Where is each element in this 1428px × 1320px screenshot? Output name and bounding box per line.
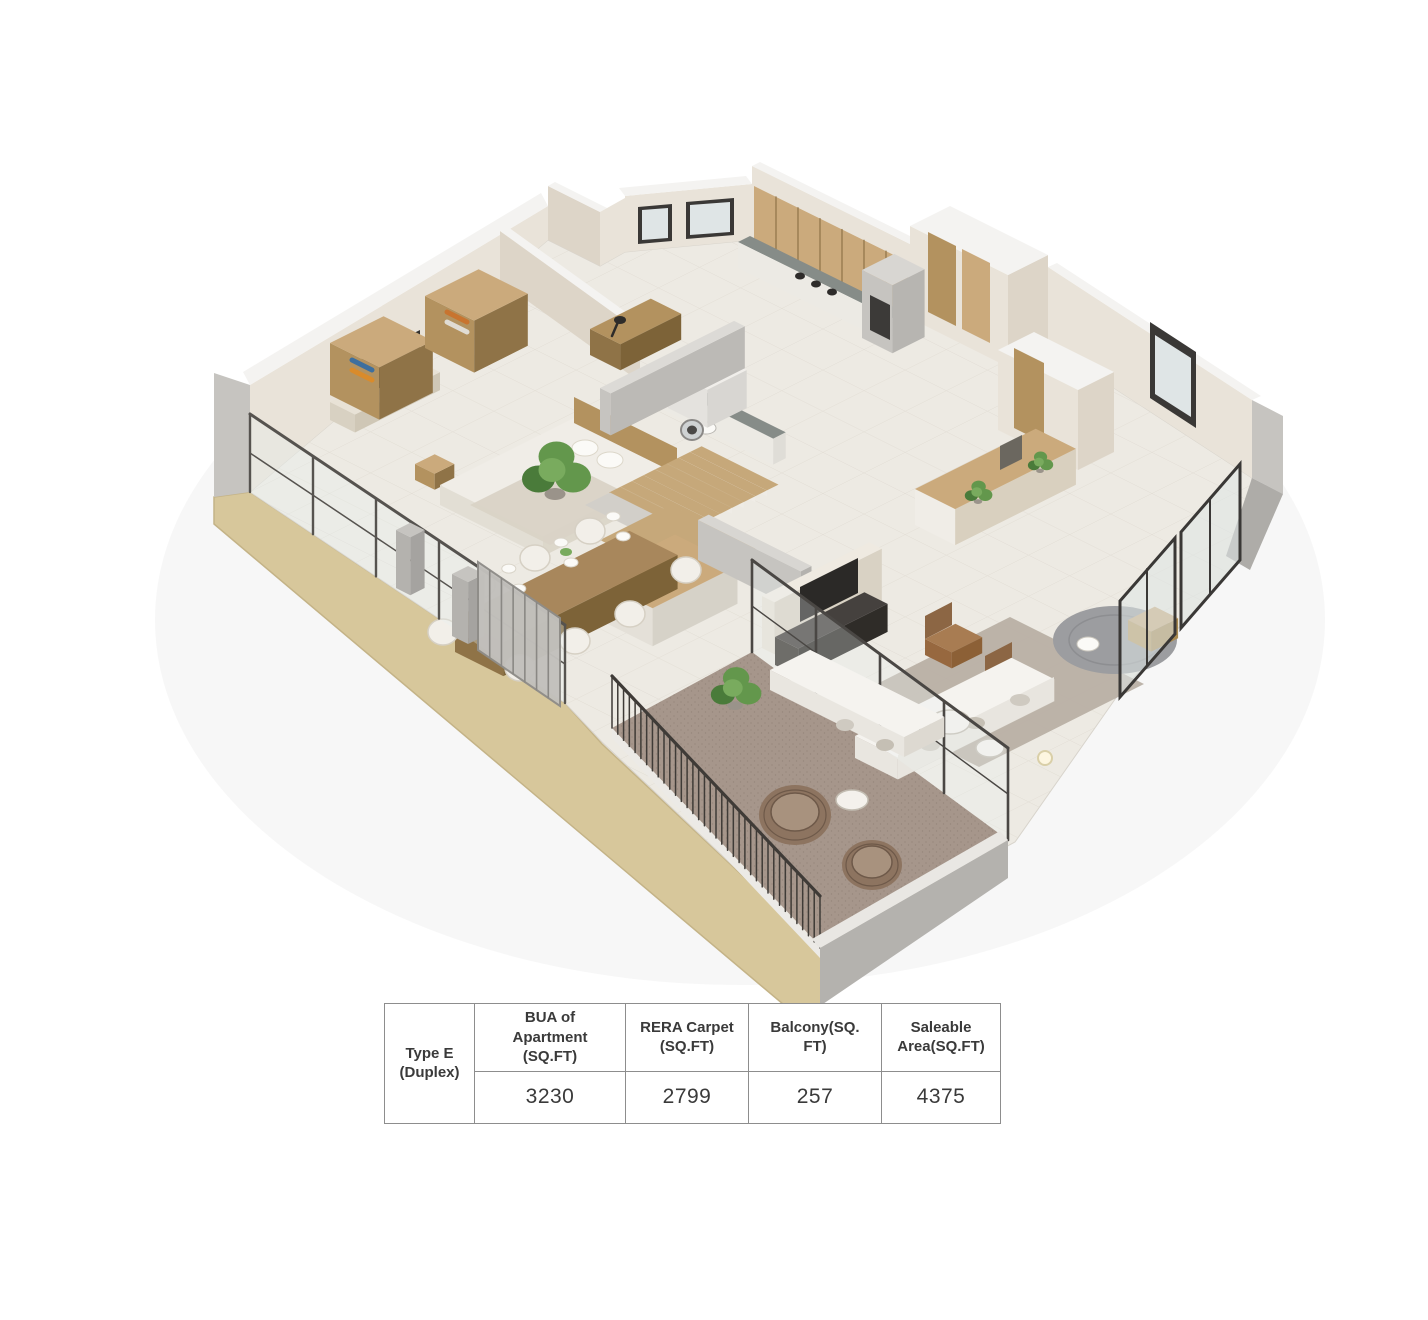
washer-door-icon xyxy=(687,426,697,435)
railing-pillar xyxy=(396,530,410,595)
pillow xyxy=(597,452,623,468)
window-glass xyxy=(642,208,668,240)
foyer-plant-icon xyxy=(1034,458,1044,467)
cooktop-burner-icon xyxy=(827,289,837,296)
cooktop-burner-icon xyxy=(811,281,821,288)
daybed-pillow xyxy=(836,719,854,731)
desk-lamp-icon xyxy=(614,316,626,324)
dining-plant-icon xyxy=(539,458,566,482)
cooktop-burner-icon xyxy=(795,273,805,280)
wicker-chair-cushion xyxy=(771,793,819,831)
dining-chair xyxy=(615,601,645,627)
floorplan-sheet: Type E (Duplex) BUA of Apartment (SQ.FT)… xyxy=(0,0,1428,1320)
place-setting xyxy=(564,558,578,567)
wall-end-east xyxy=(1252,400,1283,494)
stair-back-wall xyxy=(600,388,611,435)
unit-type-label: Type E (Duplex) xyxy=(385,1004,475,1124)
balcony-plant-icon xyxy=(723,679,743,697)
closet-door xyxy=(928,232,956,326)
dining-chair xyxy=(520,545,550,571)
col-header-rera: RERA Carpet (SQ.FT) xyxy=(626,1004,749,1072)
powder-room-door xyxy=(1014,348,1044,443)
place-setting xyxy=(554,538,568,547)
side-table xyxy=(1077,637,1099,651)
area-table: Type E (Duplex) BUA of Apartment (SQ.FT)… xyxy=(384,1003,1001,1124)
railing-pillar xyxy=(410,530,424,595)
wicker-chair-cushion xyxy=(852,846,892,878)
value-balcony: 257 xyxy=(749,1071,882,1123)
value-rera: 2799 xyxy=(626,1071,749,1123)
pillow xyxy=(572,440,598,456)
col-header-balcony: Balcony(SQ. FT) xyxy=(749,1004,882,1072)
value-saleable: 4375 xyxy=(882,1071,1001,1123)
place-setting xyxy=(606,512,620,521)
table-centerpiece xyxy=(560,548,572,556)
place-setting xyxy=(616,532,630,541)
value-bua: 3230 xyxy=(475,1071,626,1123)
wall-end-west xyxy=(214,373,250,497)
col-header-saleable: Saleable Area(SQ.FT) xyxy=(882,1004,1001,1072)
col-header-bua: BUA of Apartment (SQ.FT) xyxy=(475,1004,626,1072)
table-lamp-icon xyxy=(1038,751,1052,765)
dining-chair xyxy=(575,518,605,544)
window-glass xyxy=(690,202,730,235)
dining-chair xyxy=(671,557,701,583)
foyer-plant-icon xyxy=(971,487,982,497)
closet-door xyxy=(962,249,990,343)
balcony-side-table xyxy=(836,790,868,810)
entry-pillar xyxy=(452,574,468,644)
daybed-pillow xyxy=(876,739,894,751)
place-setting xyxy=(502,564,516,573)
sofa-pillow xyxy=(1010,694,1030,706)
